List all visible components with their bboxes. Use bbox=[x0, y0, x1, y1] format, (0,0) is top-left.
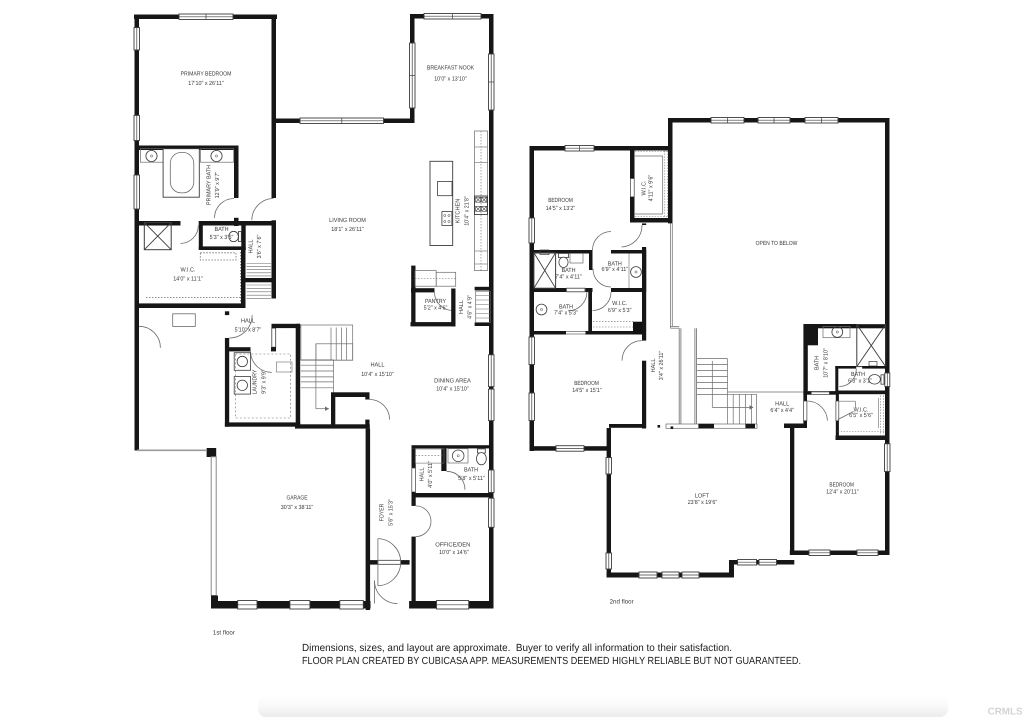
svg-text:5’6" x 15’3": 5’6" x 15’3" bbox=[388, 499, 395, 526]
svg-text:BEDROOM: BEDROOM bbox=[548, 197, 573, 204]
svg-text:9’3" x 9’9": 9’3" x 9’9" bbox=[261, 370, 268, 394]
svg-text:14’5" x 13’2": 14’5" x 13’2" bbox=[546, 205, 576, 212]
svg-text:HALL: HALL bbox=[248, 239, 255, 254]
svg-text:BATH: BATH bbox=[559, 304, 573, 311]
svg-text:23’8" x 19’6": 23’8" x 19’6" bbox=[688, 499, 718, 506]
svg-text:10’4" x 21’8": 10’4" x 21’8" bbox=[464, 196, 471, 226]
svg-text:3’6" x 7’6": 3’6" x 7’6" bbox=[256, 235, 263, 259]
svg-text:OPEN TO BELOW: OPEN TO BELOW bbox=[756, 240, 798, 247]
svg-text:PRIMARY BEDROOM: PRIMARY BEDROOM bbox=[181, 71, 232, 78]
svg-text:7’4" x 4’11": 7’4" x 4’11" bbox=[555, 274, 582, 281]
svg-text:BATH: BATH bbox=[851, 371, 865, 378]
svg-text:KITCHEN: KITCHEN bbox=[455, 199, 462, 224]
svg-text:BEDROOM: BEDROOM bbox=[574, 380, 599, 387]
svg-text:30’3" x 38’11": 30’3" x 38’11" bbox=[281, 504, 314, 511]
svg-text:LOFT: LOFT bbox=[695, 493, 709, 500]
svg-text:10’7" x 8’10": 10’7" x 8’10" bbox=[822, 348, 829, 378]
svg-text:W.I.C.: W.I.C. bbox=[612, 300, 627, 307]
svg-text:18’1" x 26’11": 18’1" x 26’11" bbox=[331, 226, 364, 233]
svg-text:GARAGE: GARAGE bbox=[286, 495, 307, 502]
svg-text:1st floor: 1st floor bbox=[213, 629, 235, 636]
svg-text:BEDROOM: BEDROOM bbox=[829, 481, 854, 488]
svg-text:10’4" x 15’10": 10’4" x 15’10" bbox=[436, 386, 469, 393]
svg-text:FLOOR PLAN CREATED BY CUBICASA: FLOOR PLAN CREATED BY CUBICASA APP. MEAS… bbox=[302, 656, 801, 667]
svg-text:W.I.C.: W.I.C. bbox=[641, 180, 648, 195]
svg-text:HALL: HALL bbox=[370, 362, 385, 369]
svg-text:6’9" x 5’3": 6’9" x 5’3" bbox=[608, 307, 632, 314]
svg-text:12’4" x 20’11": 12’4" x 20’11" bbox=[826, 488, 859, 495]
svg-text:5’8" x 5’11": 5’8" x 5’11" bbox=[458, 475, 485, 482]
svg-text:BATH: BATH bbox=[464, 467, 478, 474]
svg-text:17’10" x 26’11": 17’10" x 26’11" bbox=[188, 80, 224, 87]
svg-text:12’9" x 9’7": 12’9" x 9’7" bbox=[214, 172, 221, 199]
svg-text:HALL: HALL bbox=[419, 467, 426, 482]
svg-text:PRIMARY BATH: PRIMARY BATH bbox=[206, 165, 213, 205]
svg-text:PANTRY: PANTRY bbox=[425, 298, 446, 305]
svg-text:BATH: BATH bbox=[561, 267, 575, 274]
svg-text:W.I.C.: W.I.C. bbox=[180, 267, 195, 274]
svg-text:6’5" x 5’6": 6’5" x 5’6" bbox=[849, 412, 873, 419]
svg-text:4’0" x 5’11": 4’0" x 5’11" bbox=[427, 461, 434, 488]
svg-text:DINING AREA: DINING AREA bbox=[434, 378, 471, 385]
svg-text:3’4" x 26’11": 3’4" x 26’11" bbox=[658, 351, 665, 381]
svg-text:BATH: BATH bbox=[814, 356, 821, 370]
svg-text:4’6" x 4’9": 4’6" x 4’9" bbox=[467, 295, 474, 319]
svg-text:10’0" x 14’6": 10’0" x 14’6" bbox=[439, 549, 469, 556]
svg-text:Dimensions, sizes, and layout: Dimensions, sizes, and layout are approx… bbox=[302, 643, 732, 654]
svg-text:6’3" x 3’1": 6’3" x 3’1" bbox=[848, 378, 872, 385]
svg-text:2nd floor: 2nd floor bbox=[610, 598, 634, 605]
svg-text:OFFICE/DEN: OFFICE/DEN bbox=[435, 542, 470, 549]
svg-text:HALL: HALL bbox=[775, 400, 790, 407]
svg-text:HALL: HALL bbox=[458, 299, 465, 314]
svg-text:BATH: BATH bbox=[214, 226, 228, 233]
svg-text:7’4" x 5’3": 7’4" x 5’3" bbox=[554, 310, 578, 317]
svg-text:FOYER: FOYER bbox=[379, 503, 386, 521]
svg-text:5’10" x 8’7": 5’10" x 8’7" bbox=[235, 327, 262, 334]
svg-text:10’0" x 13’10": 10’0" x 13’10" bbox=[434, 75, 467, 82]
svg-text:10’4" x 15’10": 10’4" x 15’10" bbox=[361, 371, 394, 378]
svg-text:6’4" x 4’4": 6’4" x 4’4" bbox=[770, 407, 794, 414]
svg-text:BREAKFAST NOOK: BREAKFAST NOOK bbox=[427, 65, 474, 72]
svg-text:14’0" x 11’1": 14’0" x 11’1" bbox=[173, 276, 203, 283]
svg-text:LIVING ROOM: LIVING ROOM bbox=[329, 217, 366, 224]
svg-text:HALL: HALL bbox=[241, 318, 256, 325]
svg-text:5’2" x 4’6": 5’2" x 4’6" bbox=[424, 305, 448, 312]
svg-text:HALL: HALL bbox=[650, 358, 657, 373]
svg-text:LAUNDRY: LAUNDRY bbox=[252, 370, 259, 395]
svg-text:14’5" x 15’1": 14’5" x 15’1" bbox=[572, 387, 602, 394]
svg-text:6’9" x 4’11": 6’9" x 4’11" bbox=[601, 266, 628, 273]
svg-text:5’3" x 3’5": 5’3" x 3’5" bbox=[210, 234, 234, 241]
svg-text:CRMLS: CRMLS bbox=[988, 706, 1023, 717]
svg-text:4’11" x 9’6": 4’11" x 9’6" bbox=[648, 175, 655, 202]
